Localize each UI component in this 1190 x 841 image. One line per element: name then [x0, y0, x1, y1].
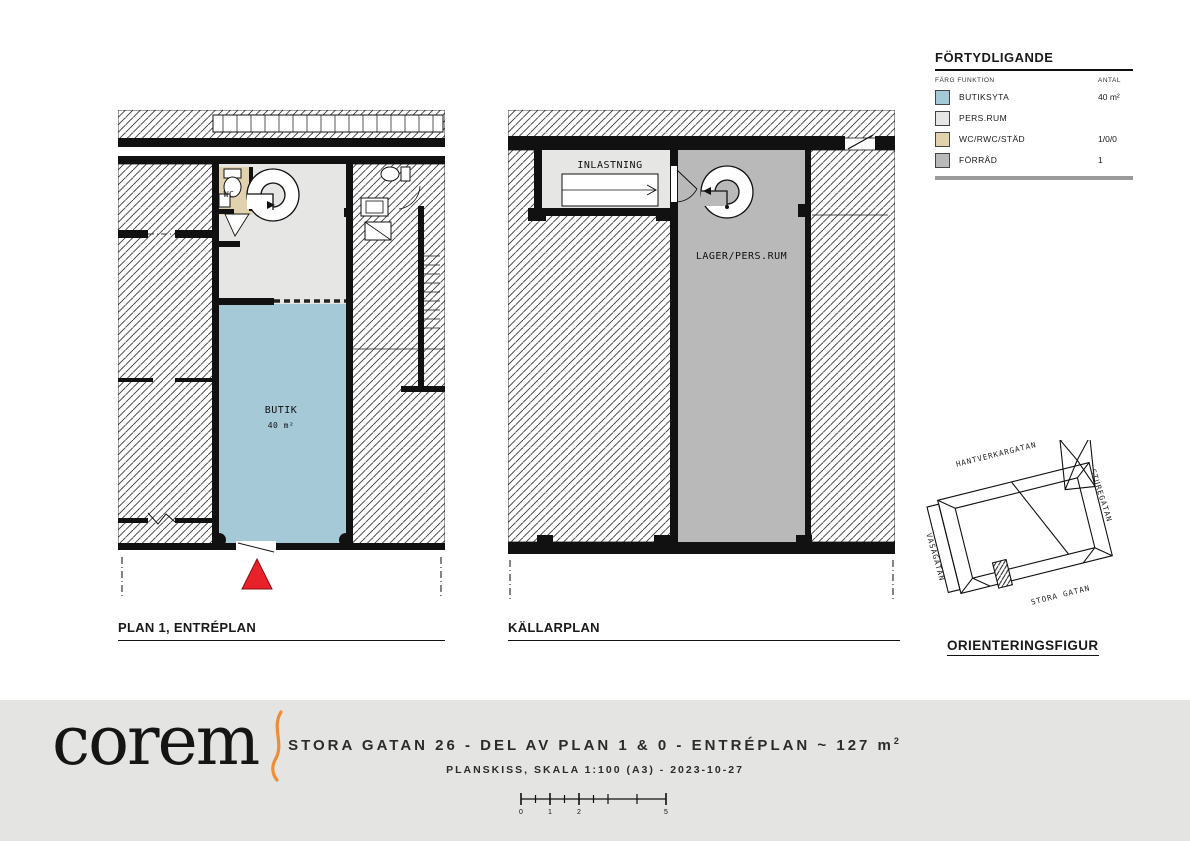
spiral-stair-icon	[701, 166, 753, 218]
scale-bar: 0 1 2 5	[515, 790, 675, 818]
bottom-facade-wall	[118, 543, 445, 550]
legend-title: FÖRTYDLIGANDE	[935, 50, 1133, 71]
boundary-dash-lines	[510, 560, 893, 600]
legend-value: 40 m²	[1098, 92, 1133, 102]
forrad-swatch	[935, 153, 950, 168]
bottom-facade-wall	[508, 542, 895, 554]
scale-tick-0: 0	[519, 809, 523, 816]
butiksyta-swatch	[935, 90, 950, 105]
sheet-subtitle: PLANSKISS, SKALA 1:100 (A3) - 2023-10-27	[0, 764, 1190, 776]
orientation-title: ORIENTERINGSFIGUR	[947, 638, 1099, 656]
entrance-opening	[236, 541, 276, 552]
sheet-title: STORA GATAN 26 - DEL AV PLAN 1 & 0 - ENT…	[0, 736, 1190, 754]
upper-building-band	[508, 110, 895, 150]
butik-room-label: BUTIK	[241, 405, 321, 416]
wc-room-label: WC	[204, 190, 254, 199]
main-block	[118, 156, 445, 552]
entrance-marker-triangle	[242, 559, 272, 589]
legend-row-wc: WC/RWC/STÄD 1/0/0	[935, 131, 1133, 147]
legend-label: FÖRRÅD	[959, 155, 1098, 165]
scale-tick-5: 5	[664, 809, 668, 816]
column	[212, 533, 226, 547]
top-wall	[118, 156, 445, 164]
legend-row-persrum: PERS.RUM	[935, 110, 1133, 126]
plan1-title: PLAN 1, ENTRÉPLAN	[118, 620, 445, 641]
sheet-title-sup: 2	[894, 736, 902, 746]
legend-row-forrad: FÖRRÅD 1	[935, 152, 1133, 168]
spiral-stair-icon	[247, 169, 299, 221]
lager-room-label: LAGER/PERS.RUM	[678, 251, 805, 262]
scale-tick-2: 2	[577, 809, 581, 816]
orientation-title-wrap: ORIENTERINGSFIGUR	[947, 637, 1099, 656]
legend: FÖRTYDLIGANDE FÄRG FUNKTION ANTAL BUTIKS…	[935, 50, 1133, 180]
legend-column-headers: FÄRG FUNKTION ANTAL	[935, 77, 1133, 84]
loading-ramp	[562, 174, 658, 206]
legend-value: 1/0/0	[1098, 134, 1133, 144]
main-block	[508, 150, 895, 554]
legend-value: 1	[1098, 155, 1133, 165]
legend-col-farg-funktion: FÄRG FUNKTION	[935, 77, 995, 84]
orientation-figure: HANTVERKARGATAN STUREGATAN VASAGATAN STO…	[925, 440, 1130, 635]
inlastning-room-label: INLASTNING	[555, 160, 665, 171]
wc-swatch	[935, 132, 950, 147]
persrum-swatch	[935, 111, 950, 126]
planskiss-sheet: FÖRTYDLIGANDE FÄRG FUNKTION ANTAL BUTIKS…	[0, 0, 1190, 841]
legend-divider	[935, 176, 1133, 180]
legend-label: WC/RWC/STÄD	[959, 134, 1098, 144]
legend-label: PERS.RUM	[959, 113, 1098, 123]
upper-building-band	[118, 110, 445, 147]
floorplan-kallarplan	[508, 110, 895, 600]
butik-area-label: 40 m²	[241, 421, 321, 430]
plan2-title: KÄLLARPLAN	[508, 620, 900, 641]
floorplan-entreplan	[118, 110, 445, 600]
scale-tick-1: 1	[548, 809, 552, 816]
sheet-title-text: STORA GATAN 26 - DEL AV PLAN 1 & 0 - ENT…	[288, 737, 894, 754]
legend-label: BUTIKSYTA	[959, 92, 1098, 102]
column	[339, 533, 353, 547]
footer-strip: corem STORA GATAN 26 - DEL AV PLAN 1 & 0…	[0, 700, 1190, 841]
legend-col-antal: ANTAL	[1098, 77, 1121, 84]
boundary-dash-lines	[122, 557, 441, 597]
legend-row-butiksyta: BUTIKSYTA 40 m²	[935, 89, 1133, 105]
